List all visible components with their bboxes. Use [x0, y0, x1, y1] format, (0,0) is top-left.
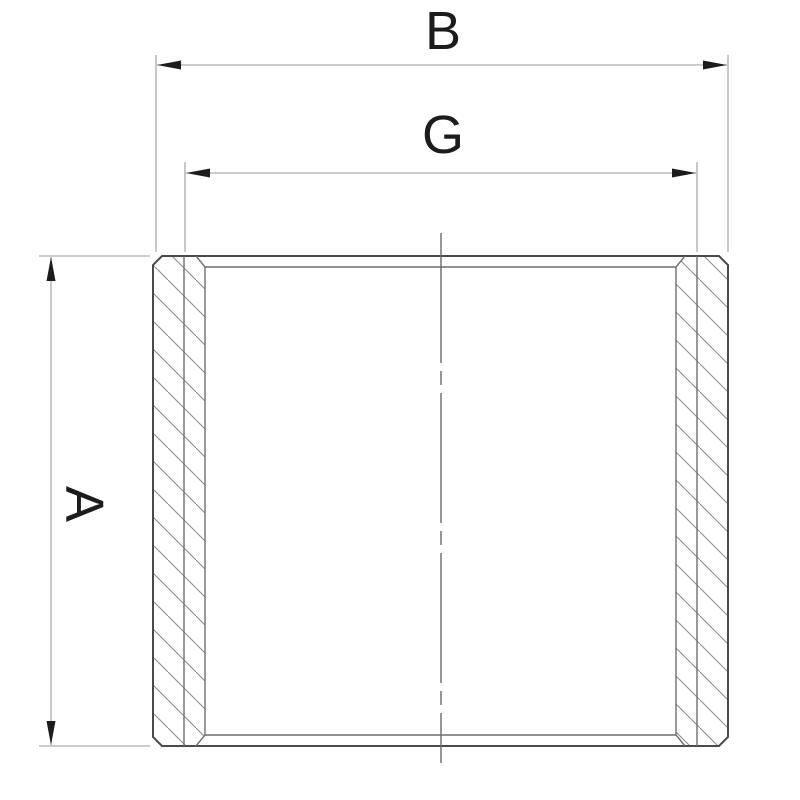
dimension-a-label: A: [54, 486, 114, 522]
left-wall-hatch: [153, 256, 205, 746]
dimension-g-label: G: [422, 105, 464, 165]
dimension-b-arrowhead-left: [157, 61, 181, 70]
part-body: [153, 233, 728, 763]
right-wall-hatch: [676, 256, 728, 746]
dimension-g-arrowhead-left: [186, 169, 210, 178]
dimension-b-label: B: [425, 1, 461, 61]
dimension-g-arrowhead-right: [672, 169, 696, 178]
dimension-a: A: [39, 256, 150, 746]
dimension-b-arrowhead-right: [703, 61, 727, 70]
dimension-a-arrowhead-bottom: [47, 721, 56, 745]
engineering-drawing: B G A: [0, 0, 800, 800]
dimension-a-arrowhead-top: [47, 257, 56, 281]
drawing-canvas: B G A: [0, 0, 800, 800]
dimension-g: G: [185, 105, 697, 252]
